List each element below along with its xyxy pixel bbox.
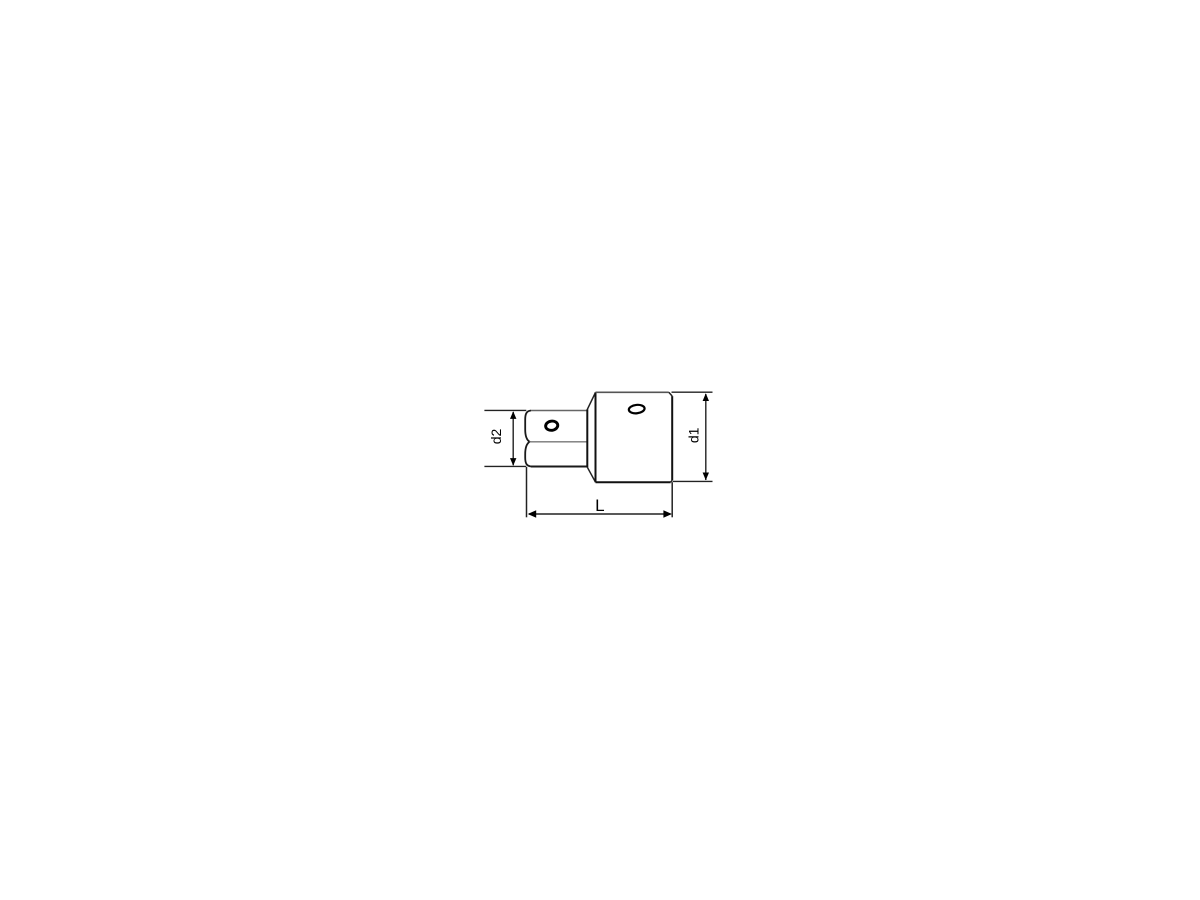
svg-text:d1: d1	[686, 427, 702, 443]
svg-text:L: L	[595, 496, 604, 515]
svg-text:d2: d2	[488, 429, 504, 445]
